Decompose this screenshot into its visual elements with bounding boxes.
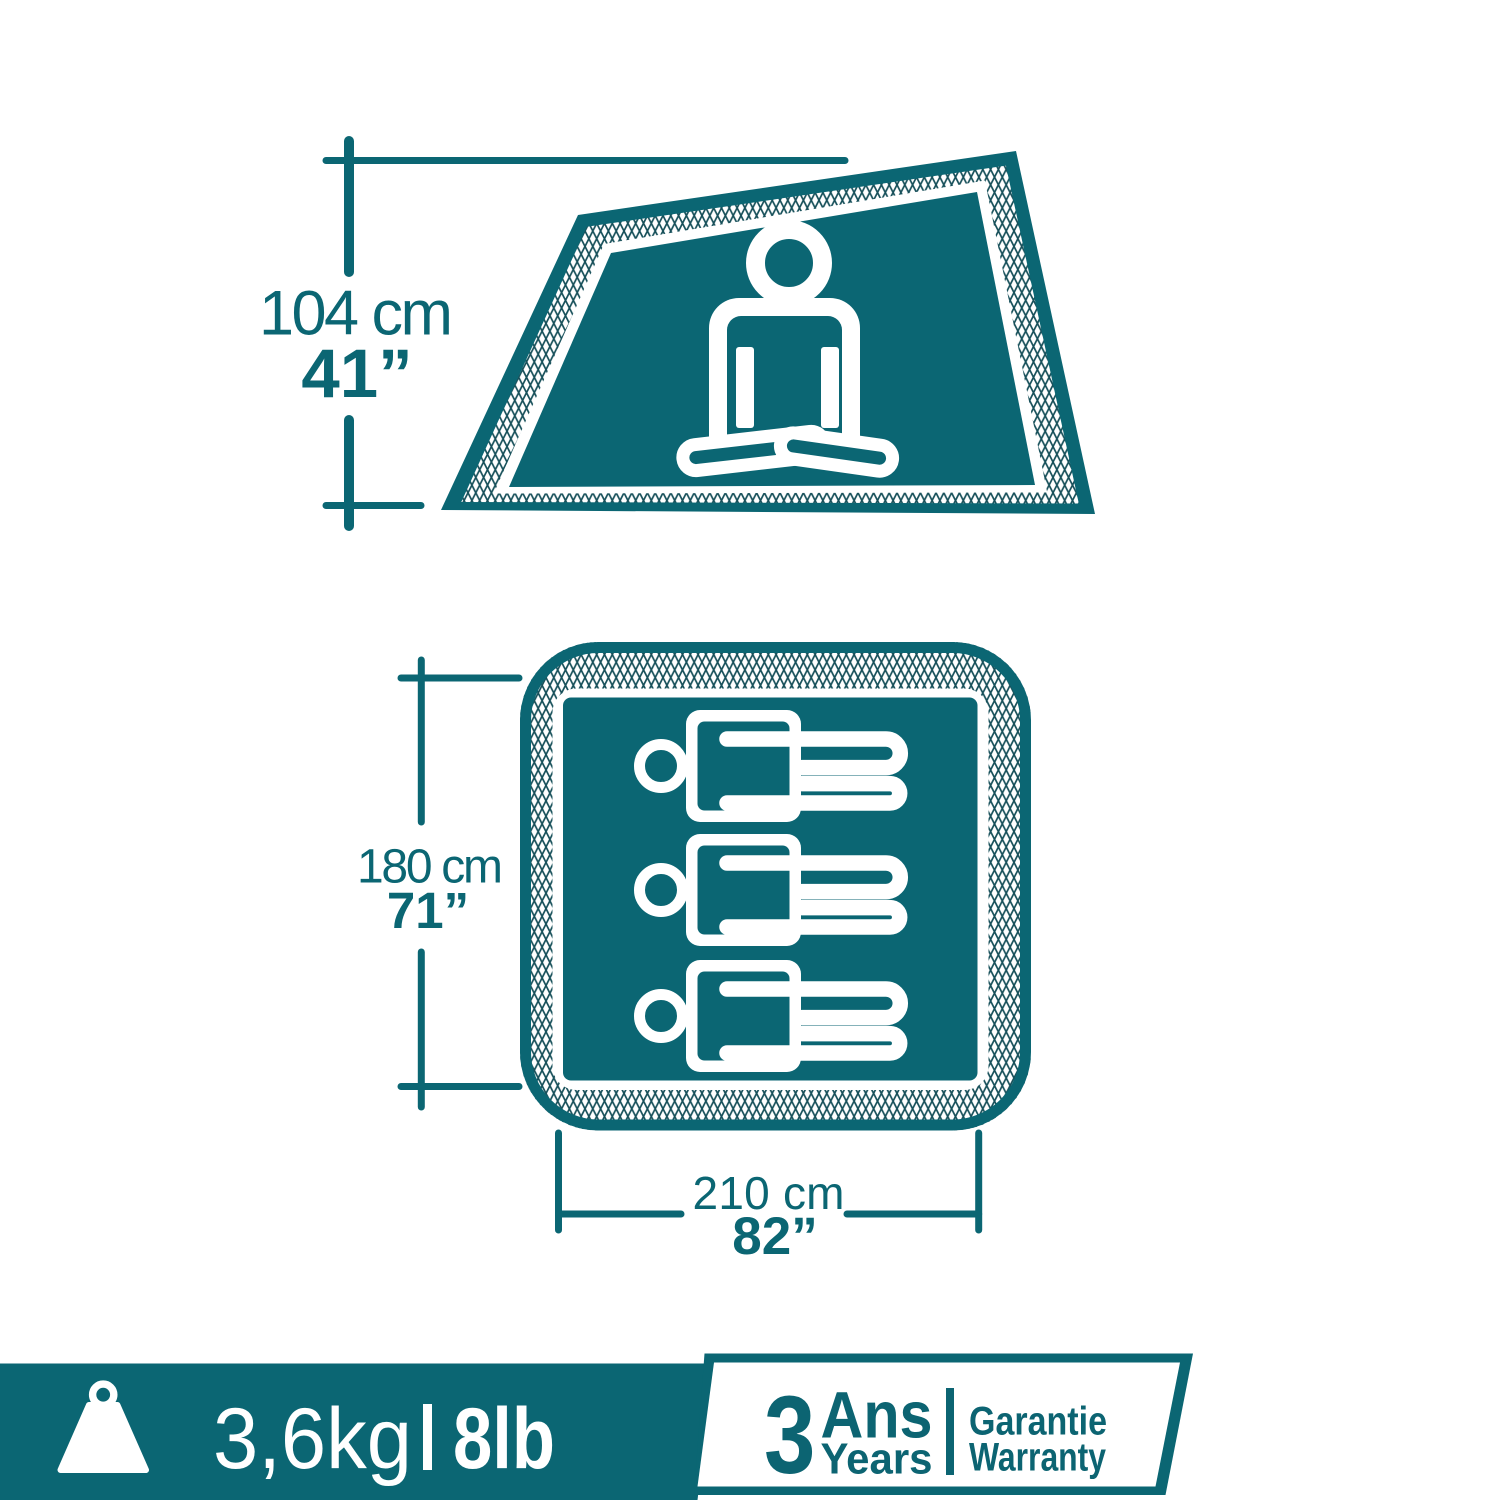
svg-text:71”: 71” <box>387 882 469 939</box>
svg-text:Years: Years <box>821 1434 933 1483</box>
svg-text:8lb: 8lb <box>453 1391 555 1487</box>
svg-text:3,6kg: 3,6kg <box>213 1391 412 1487</box>
svg-text:3: 3 <box>764 1373 815 1496</box>
svg-text:82”: 82” <box>732 1207 817 1266</box>
svg-text:41”: 41” <box>301 335 412 412</box>
svg-text:Warranty: Warranty <box>969 1436 1107 1480</box>
